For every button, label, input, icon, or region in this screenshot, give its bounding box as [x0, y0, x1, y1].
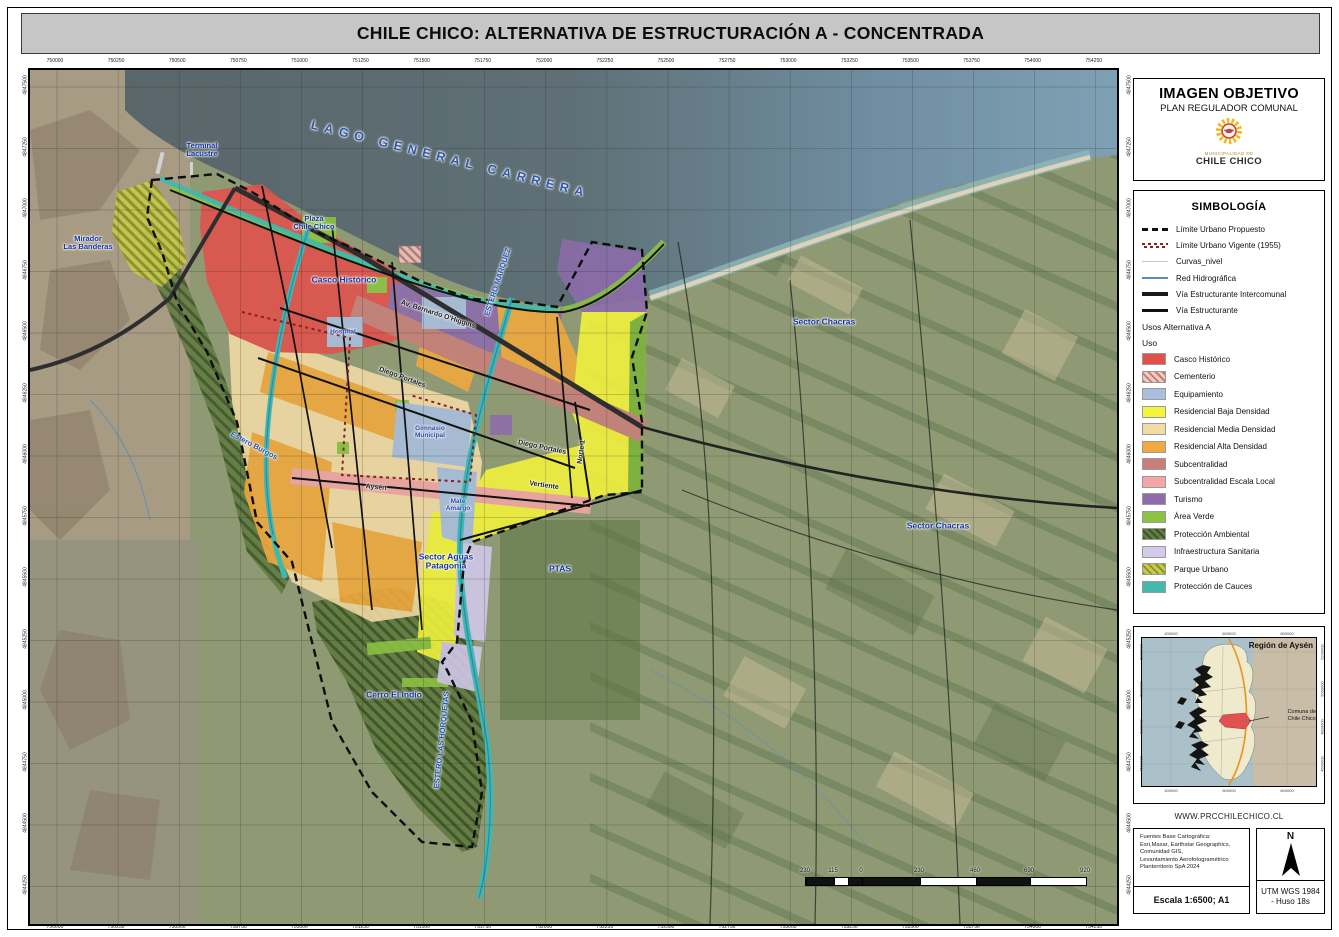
legend-uso-item: Subcentralidad Escala Local: [1142, 476, 1316, 488]
inset-tick: 5000000: [1319, 681, 1324, 697]
legend-uso-title: Usos Alternativa A: [1142, 322, 1316, 332]
credit-line: Fuentes Base Cartográfica:: [1140, 834, 1243, 842]
legend-line-items: Límite Urbano PropuestoLímite Urbano Vig…: [1142, 225, 1316, 315]
tick-label: 4845500: [1127, 567, 1133, 586]
inset-tick: 400000: [1164, 631, 1177, 636]
legend-uso-label: Residencial Media Densidad: [1174, 425, 1275, 434]
scale-label: 230: [914, 868, 924, 874]
inset-tick: 4600000: [1319, 756, 1324, 772]
legend-line-item: Vía Estructurante Intercomunal: [1142, 290, 1316, 299]
uso-swatch: [1142, 511, 1166, 523]
legend-uso-item: Residencial Baja Densidad: [1142, 406, 1316, 418]
tick-label: 751000: [291, 58, 308, 64]
legend-uso-label: Casco Histórico: [1174, 355, 1230, 364]
legend: SIMBOLOGÍA Límite Urbano PropuestoLímite…: [1133, 190, 1325, 614]
scale-bar-segments: [805, 877, 1087, 886]
inset-tick: 800000: [1280, 788, 1293, 793]
legend-uso-item: Parque Urbano: [1142, 563, 1316, 575]
legend-uso-item: Equipamiento: [1142, 388, 1316, 400]
uso-swatch: [1142, 353, 1166, 365]
tick-label: 752500: [658, 58, 675, 64]
legend-uso-item: Cementerio: [1142, 371, 1316, 383]
legend-line-item: Curvas_nivel: [1142, 257, 1316, 266]
legend-uso-item: Infraestructura Sanitaria: [1142, 546, 1316, 558]
scale-label: 230: [800, 868, 810, 874]
legend-line-label: Red Hidrográfica: [1176, 274, 1236, 283]
scale-label: 690: [1024, 868, 1034, 874]
legend-uso-label: Área Verde: [1174, 512, 1214, 521]
scale-label: 0: [859, 868, 862, 874]
credit-line: Comunidad GIS,: [1140, 849, 1243, 857]
inset-tick: 4800000: [1319, 719, 1324, 735]
tick-label: 753500: [902, 58, 919, 64]
uso-swatch: [1142, 528, 1166, 540]
legend-uso-item: Protección de Cauces: [1142, 581, 1316, 593]
legend-uso-items: Casco HistóricoCementerioEquipamientoRes…: [1142, 353, 1316, 593]
scale-segment: [920, 878, 976, 885]
legend-line-label: Límite Urbano Vigente (1955): [1176, 241, 1281, 250]
scale-segment: [806, 878, 834, 885]
credit-line: Levantamiento Aerofotogramétrico: [1140, 857, 1243, 865]
dash-black-symbol-icon: [1142, 228, 1168, 231]
north-arrow: N: [1257, 829, 1324, 881]
credit-line: Esri,Maxar, Earthstar Geographics,: [1140, 842, 1243, 850]
legend-line-item: Vía Estructurante: [1142, 306, 1316, 315]
tick-label: 4846750: [1127, 260, 1133, 279]
title-block: IMAGEN OBJETIVO PLAN REGULADOR COMUNAL M…: [1133, 78, 1325, 181]
logo-caption: CHILE CHICO: [1134, 156, 1324, 167]
coordinate-ticks-left: 4847500484725048470004846750484650048462…: [14, 68, 23, 922]
inset-tick: 600000: [1222, 631, 1235, 636]
legend-line-item: Límite Urbano Vigente (1955): [1142, 241, 1316, 250]
tick-label: 750750: [230, 58, 247, 64]
legend-uso-item: Residencial Alta Densidad: [1142, 441, 1316, 453]
coordinate-ticks-top: 7500007502507505007507507510007512507515…: [28, 58, 1115, 67]
map-frame: LAGO GENERAL CARRERATerminal LacustreMir…: [28, 68, 1119, 926]
website-url: WWW.PRCCHILECHICO.CL: [1133, 812, 1325, 821]
scale-segment: [976, 878, 1030, 885]
tick-label: 4846250: [1127, 383, 1133, 402]
source-credits: Fuentes Base Cartográfica:Esri,Maxar, Ea…: [1134, 829, 1249, 887]
tick-label: 4847250: [1127, 137, 1133, 156]
legend-uso-label: Subcentralidad: [1174, 460, 1227, 469]
scale-segment: [848, 878, 862, 885]
tick-label: 4846500: [1127, 321, 1133, 340]
tick-label: 752250: [597, 58, 614, 64]
inset-tick: 4600000: [1138, 756, 1143, 772]
uso-swatch: [1142, 441, 1166, 453]
uso-swatch: [1142, 388, 1166, 400]
tick-label: 4844500: [1127, 813, 1133, 832]
legend-line-label: Curvas_nivel: [1176, 257, 1222, 266]
thick-symbol-icon: [1142, 292, 1168, 296]
tick-label: 751500: [413, 58, 430, 64]
legend-uso-label: Residencial Alta Densidad: [1174, 442, 1267, 451]
scale-text: Escala 1:6500; A1: [1134, 887, 1249, 913]
credits-row: Fuentes Base Cartográfica:Esri,Maxar, Ea…: [1133, 828, 1325, 914]
legend-line-label: Límite Urbano Propuesto: [1176, 225, 1265, 234]
inset-tick: 600000: [1222, 788, 1235, 793]
uso-swatch: [1142, 546, 1166, 558]
north-letter: N: [1287, 831, 1294, 842]
legend-uso-item: Área Verde: [1142, 511, 1316, 523]
tick-label: 4846000: [1127, 444, 1133, 463]
map-canvas: [30, 70, 1117, 924]
north-arrow-icon: [1277, 842, 1305, 880]
legend-uso-label: Infraestructura Sanitaria: [1174, 547, 1259, 556]
legend-uso-sub: Uso: [1142, 338, 1316, 348]
uso-swatch: [1142, 371, 1166, 383]
legend-uso-label: Cementerio: [1174, 372, 1215, 381]
dash-red-symbol-icon: [1142, 243, 1168, 248]
map-title: CHILE CHICO: ALTERNATIVA DE ESTRUCTURACI…: [357, 23, 984, 44]
inset-region-label: Región de Aysén: [1249, 641, 1313, 650]
blue-symbol-icon: [1142, 277, 1168, 279]
legend-line-item: Red Hidrográfica: [1142, 274, 1316, 283]
med-symbol-icon: [1142, 309, 1168, 312]
uso-swatch: [1142, 493, 1166, 505]
tick-label: 752750: [719, 58, 736, 64]
inset-tick: 5000000: [1138, 681, 1143, 697]
thin-gray-symbol-icon: [1142, 261, 1168, 262]
tick-label: 751250: [352, 58, 369, 64]
tick-label: 750000: [47, 58, 64, 64]
legend-title: SIMBOLOGÍA: [1142, 201, 1316, 213]
inset-tick: 4800000: [1138, 719, 1143, 735]
north-box: N UTM WGS 1984 - Huso 18s: [1256, 828, 1325, 914]
legend-uso-item: Protección Ambiental: [1142, 528, 1316, 540]
uso-swatch: [1142, 423, 1166, 435]
tick-label: 752000: [535, 58, 552, 64]
scale-segment: [862, 878, 920, 885]
tick-label: 754250: [1085, 58, 1102, 64]
tick-label: 753000: [780, 58, 797, 64]
scale-label: 115: [828, 868, 838, 874]
tick-label: 4847000: [1127, 198, 1133, 217]
scale-label: 920: [1080, 868, 1090, 874]
legend-uso-label: Subcentralidad Escala Local: [1174, 477, 1275, 486]
legend-uso-item: Subcentralidad: [1142, 458, 1316, 470]
zone-cementerio: [399, 246, 421, 263]
tick-label: 4845000: [1127, 690, 1133, 709]
legend-uso-label: Equipamiento: [1174, 390, 1223, 399]
credit-line: Planterritorio SpA 2024: [1140, 864, 1243, 872]
inset-tick: 800000: [1280, 631, 1293, 636]
title-bar: CHILE CHICO: ALTERNATIVA DE ESTRUCTURACI…: [21, 13, 1320, 54]
tick-label: 4847500: [1127, 75, 1133, 94]
side-panel: IMAGEN OBJETIVO PLAN REGULADOR COMUNAL M…: [1133, 78, 1325, 914]
tick-label: 4844750: [1127, 752, 1133, 771]
legend-uso-item: Casco Histórico: [1142, 353, 1316, 365]
tick-label: 754000: [1024, 58, 1041, 64]
map-sheet: CHILE CHICO: ALTERNATIVA DE ESTRUCTURACI…: [0, 0, 1339, 937]
datum-text: UTM WGS 1984 - Huso 18s: [1257, 881, 1324, 913]
legend-uso-item: Residencial Media Densidad: [1142, 423, 1316, 435]
coordinate-ticks-right: 4847500484725048470004846750484650048462…: [1118, 68, 1127, 922]
uso-swatch: [1142, 581, 1166, 593]
inset-tick: 400000: [1164, 788, 1177, 793]
panel-title: IMAGEN OBJETIVO: [1134, 86, 1324, 102]
locator-map: Región de Aysén Comuna de Chile Chico 40…: [1141, 637, 1317, 787]
legend-line-label: Vía Estructurante: [1176, 306, 1238, 315]
inset-tick: 5200000: [1138, 644, 1143, 660]
legend-uso-label: Residencial Baja Densidad: [1174, 407, 1270, 416]
scale-label: 460: [970, 868, 980, 874]
panel-subtitle: PLAN REGULADOR COMUNAL: [1134, 103, 1324, 114]
uso-swatch: [1142, 406, 1166, 418]
tick-label: 4845750: [1127, 506, 1133, 525]
tick-label: 753250: [841, 58, 858, 64]
uso-swatch: [1142, 476, 1166, 488]
tick-label: 753750: [963, 58, 980, 64]
legend-line-item: Límite Urbano Propuesto: [1142, 225, 1316, 234]
legend-uso-label: Protección Ambiental: [1174, 530, 1249, 539]
inset-comuna-label: Comuna de Chile Chico: [1288, 709, 1316, 722]
credits-box: Fuentes Base Cartográfica:Esri,Maxar, Ea…: [1133, 828, 1250, 914]
scale-segment: [834, 878, 848, 885]
legend-uso-label: Parque Urbano: [1174, 565, 1228, 574]
legend-uso-item: Turismo: [1142, 493, 1316, 505]
uso-swatch: [1142, 563, 1166, 575]
tick-label: 750250: [108, 58, 125, 64]
inset-tick: 5200000: [1319, 644, 1324, 660]
tick-label: 751750: [474, 58, 491, 64]
legend-uso-label: Protección de Cauces: [1174, 582, 1252, 591]
tick-label: 4844250: [1127, 875, 1133, 894]
scale-bar: 2301150230460690920: [805, 868, 1087, 890]
locator-inset: Región de Aysén Comuna de Chile Chico 40…: [1133, 626, 1325, 804]
uso-swatch: [1142, 458, 1166, 470]
tick-label: 750500: [169, 58, 186, 64]
scale-segment: [1030, 878, 1086, 885]
legend-line-label: Vía Estructurante Intercomunal: [1176, 290, 1286, 299]
municipality-logo-icon: [1134, 118, 1324, 153]
legend-uso-label: Turismo: [1174, 495, 1203, 504]
tick-label: 4845250: [1127, 629, 1133, 648]
